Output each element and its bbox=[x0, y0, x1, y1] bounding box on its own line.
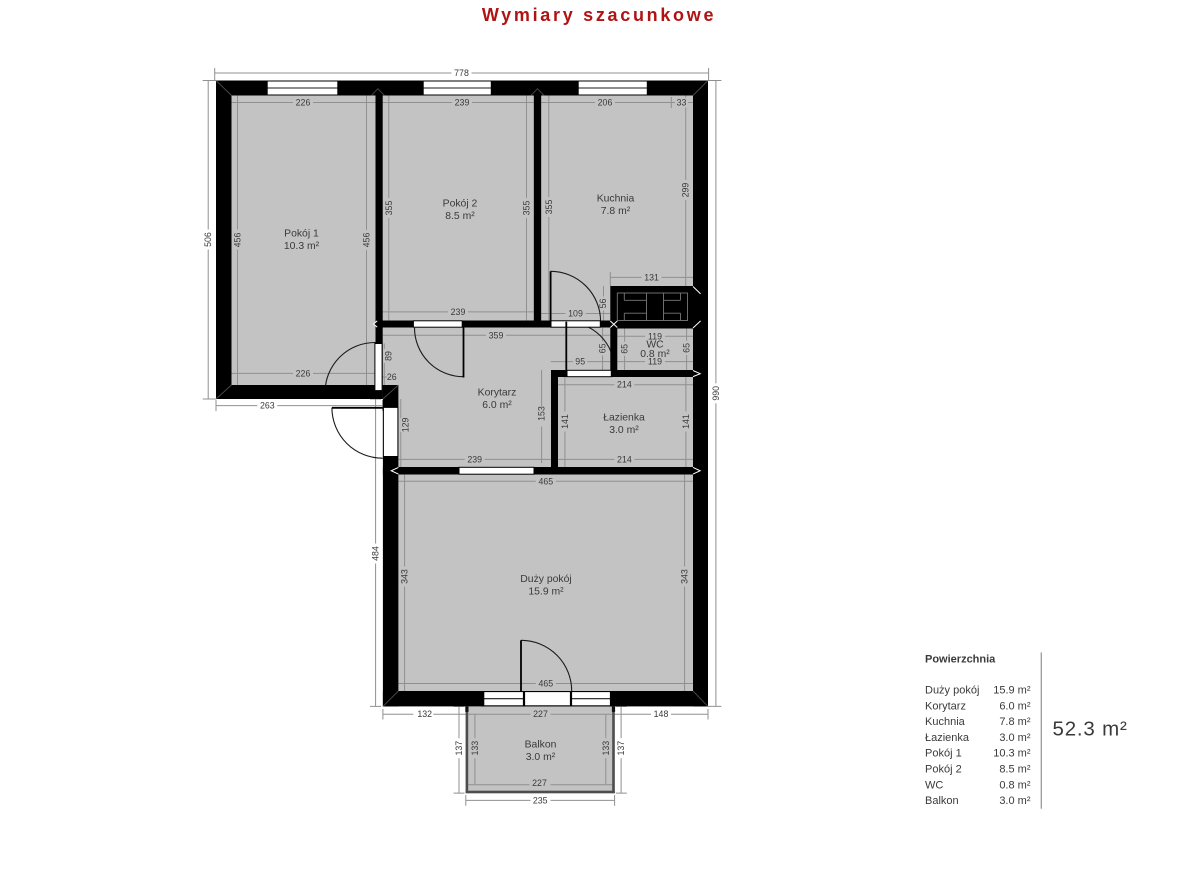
svg-text:10.3 m²: 10.3 m² bbox=[993, 748, 1031, 760]
svg-text:148: 148 bbox=[654, 709, 669, 719]
svg-text:6.0 m²: 6.0 m² bbox=[482, 400, 512, 411]
svg-text:Pokój 1: Pokój 1 bbox=[925, 748, 962, 760]
svg-text:153: 153 bbox=[537, 406, 547, 421]
svg-text:137: 137 bbox=[616, 741, 626, 756]
svg-text:226: 226 bbox=[296, 98, 311, 108]
svg-text:227: 227 bbox=[533, 709, 548, 719]
svg-text:3.0 m²: 3.0 m² bbox=[609, 425, 639, 436]
svg-text:65: 65 bbox=[620, 344, 630, 354]
svg-text:343: 343 bbox=[680, 569, 690, 584]
svg-text:Duży pokój: Duży pokój bbox=[520, 574, 571, 585]
svg-text:Korytarz: Korytarz bbox=[478, 388, 517, 399]
svg-text:214: 214 bbox=[617, 454, 632, 464]
svg-text:26: 26 bbox=[387, 372, 397, 382]
svg-text:WC: WC bbox=[925, 779, 943, 791]
svg-text:227: 227 bbox=[532, 778, 547, 788]
svg-text:6.0 m²: 6.0 m² bbox=[999, 700, 1031, 712]
svg-text:131: 131 bbox=[644, 272, 659, 282]
svg-text:Pokój 1: Pokój 1 bbox=[284, 229, 319, 240]
svg-text:3.0 m²: 3.0 m² bbox=[526, 752, 556, 763]
svg-text:129: 129 bbox=[400, 417, 410, 432]
svg-text:Łazienka: Łazienka bbox=[603, 413, 645, 424]
svg-text:Pokój 2: Pokój 2 bbox=[925, 764, 962, 776]
svg-text:Kuchnia: Kuchnia bbox=[597, 194, 635, 205]
svg-text:132: 132 bbox=[417, 709, 432, 719]
svg-text:Łazienka: Łazienka bbox=[925, 732, 970, 744]
svg-text:359: 359 bbox=[489, 330, 504, 340]
svg-text:355: 355 bbox=[544, 200, 554, 215]
svg-text:990: 990 bbox=[711, 386, 721, 401]
svg-text:0.8 m²: 0.8 m² bbox=[640, 349, 670, 360]
svg-text:239: 239 bbox=[455, 98, 470, 108]
svg-text:343: 343 bbox=[400, 569, 410, 584]
svg-text:33: 33 bbox=[677, 98, 687, 108]
svg-text:239: 239 bbox=[451, 307, 466, 317]
svg-text:56: 56 bbox=[598, 299, 608, 309]
svg-text:8.5 m²: 8.5 m² bbox=[445, 211, 475, 222]
svg-text:Korytarz: Korytarz bbox=[925, 700, 966, 712]
svg-text:465: 465 bbox=[538, 476, 553, 486]
svg-text:Duży pokój: Duży pokój bbox=[925, 685, 979, 697]
svg-text:355: 355 bbox=[522, 201, 532, 216]
svg-text:141: 141 bbox=[681, 414, 691, 429]
svg-text:8.5 m²: 8.5 m² bbox=[999, 764, 1031, 776]
svg-text:226: 226 bbox=[296, 368, 311, 378]
svg-text:299: 299 bbox=[681, 183, 691, 198]
svg-text:239: 239 bbox=[467, 454, 482, 464]
svg-text:3.0 m²: 3.0 m² bbox=[999, 795, 1031, 807]
svg-text:506: 506 bbox=[203, 232, 213, 247]
svg-text:7.8 m²: 7.8 m² bbox=[999, 716, 1031, 728]
svg-text:456: 456 bbox=[233, 233, 243, 248]
svg-text:15.9 m²: 15.9 m² bbox=[528, 587, 564, 598]
svg-text:Balkon: Balkon bbox=[925, 795, 959, 807]
svg-text:778: 778 bbox=[454, 68, 469, 78]
svg-text:15.9 m²: 15.9 m² bbox=[993, 685, 1031, 697]
svg-text:456: 456 bbox=[362, 233, 372, 248]
svg-text:214: 214 bbox=[617, 380, 632, 390]
svg-text:65: 65 bbox=[598, 343, 608, 353]
svg-text:109: 109 bbox=[568, 309, 583, 319]
svg-text:89: 89 bbox=[383, 351, 393, 361]
svg-text:141: 141 bbox=[560, 414, 570, 429]
svg-text:355: 355 bbox=[384, 201, 394, 216]
svg-text:133: 133 bbox=[601, 741, 611, 756]
svg-text:465: 465 bbox=[538, 679, 553, 689]
svg-text:95: 95 bbox=[575, 357, 585, 367]
svg-text:Kuchnia: Kuchnia bbox=[925, 716, 966, 728]
svg-text:484: 484 bbox=[371, 546, 381, 561]
svg-text:65: 65 bbox=[682, 343, 692, 353]
svg-text:Balkon: Balkon bbox=[525, 740, 557, 751]
svg-text:235: 235 bbox=[533, 795, 548, 805]
svg-text:3.0 m²: 3.0 m² bbox=[999, 732, 1031, 744]
svg-text:7.8 m²: 7.8 m² bbox=[601, 206, 631, 217]
svg-text:Pokój 2: Pokój 2 bbox=[443, 199, 478, 210]
svg-text:206: 206 bbox=[598, 98, 613, 108]
svg-text:0.8 m²: 0.8 m² bbox=[999, 779, 1031, 791]
svg-text:263: 263 bbox=[260, 401, 275, 411]
svg-text:52.3 m²: 52.3 m² bbox=[1053, 718, 1128, 741]
svg-text:10.3 m²: 10.3 m² bbox=[284, 241, 320, 252]
svg-text:133: 133 bbox=[470, 741, 480, 756]
svg-text:Powierzchnia: Powierzchnia bbox=[925, 654, 996, 666]
svg-text:137: 137 bbox=[454, 741, 464, 756]
svg-text:Wymiary szacunkowe: Wymiary szacunkowe bbox=[482, 5, 716, 25]
